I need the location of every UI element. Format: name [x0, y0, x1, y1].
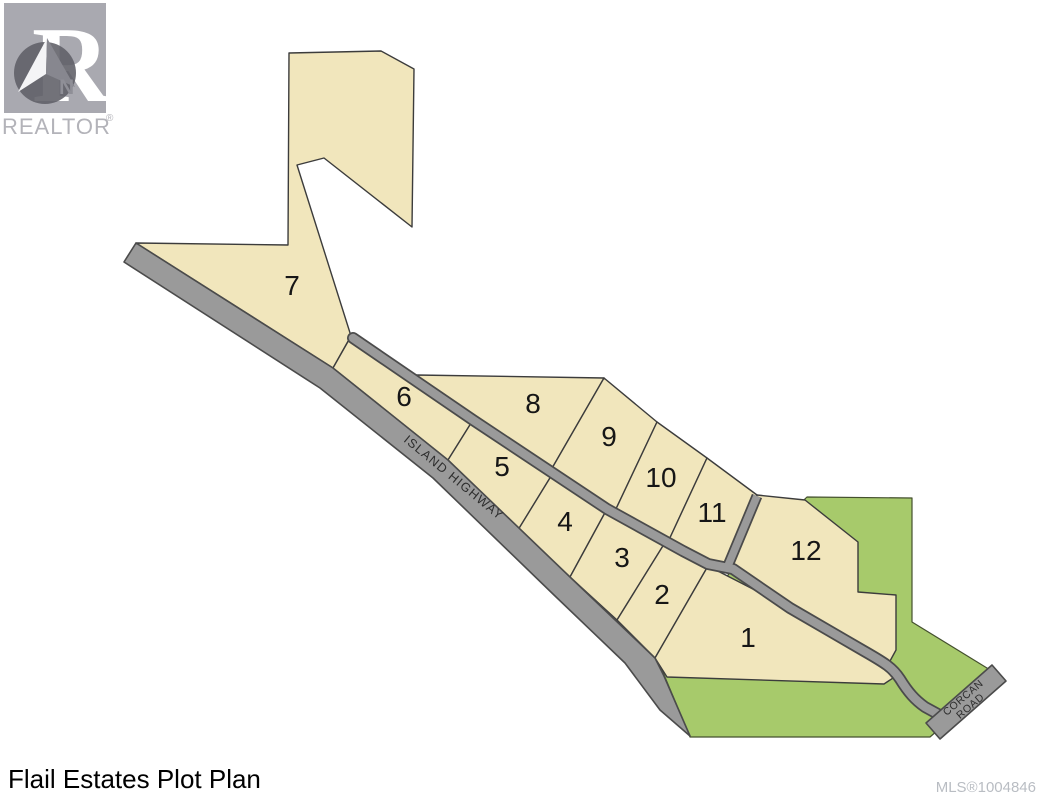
lot-6-label: 6 — [396, 381, 412, 412]
lot-8-label: 8 — [525, 388, 541, 419]
lot-2-label: 2 — [654, 579, 670, 610]
page-title: Flail Estates Plot Plan — [8, 764, 261, 794]
lot-3-label: 3 — [614, 542, 630, 573]
lot-4-label: 4 — [557, 506, 573, 537]
mls-number: MLS®1004846 — [936, 779, 1036, 796]
lot-1-label: 1 — [740, 622, 756, 653]
lot-12-label: 12 — [790, 535, 821, 566]
parcel-lot-7 — [136, 51, 414, 368]
compass-north-label: N — [59, 76, 74, 99]
realtor-wordmark: REALTOR — [2, 114, 111, 139]
registered-mark: ® — [106, 113, 114, 124]
plot-plan-map: CORCAN ROAD ISLAND HIGHWAY 1 2 3 4 5 6 7… — [0, 0, 1041, 805]
lot-5-label: 5 — [494, 451, 510, 482]
lot-11-label: 11 — [697, 497, 726, 528]
lot-10-label: 10 — [645, 462, 676, 493]
lot-7-label: 7 — [284, 270, 300, 301]
realtor-logo: R N REALTOR ® — [2, 3, 114, 139]
plot-plan-page: CORCAN ROAD ISLAND HIGHWAY 1 2 3 4 5 6 7… — [0, 0, 1041, 805]
lot-9-label: 9 — [601, 421, 617, 452]
